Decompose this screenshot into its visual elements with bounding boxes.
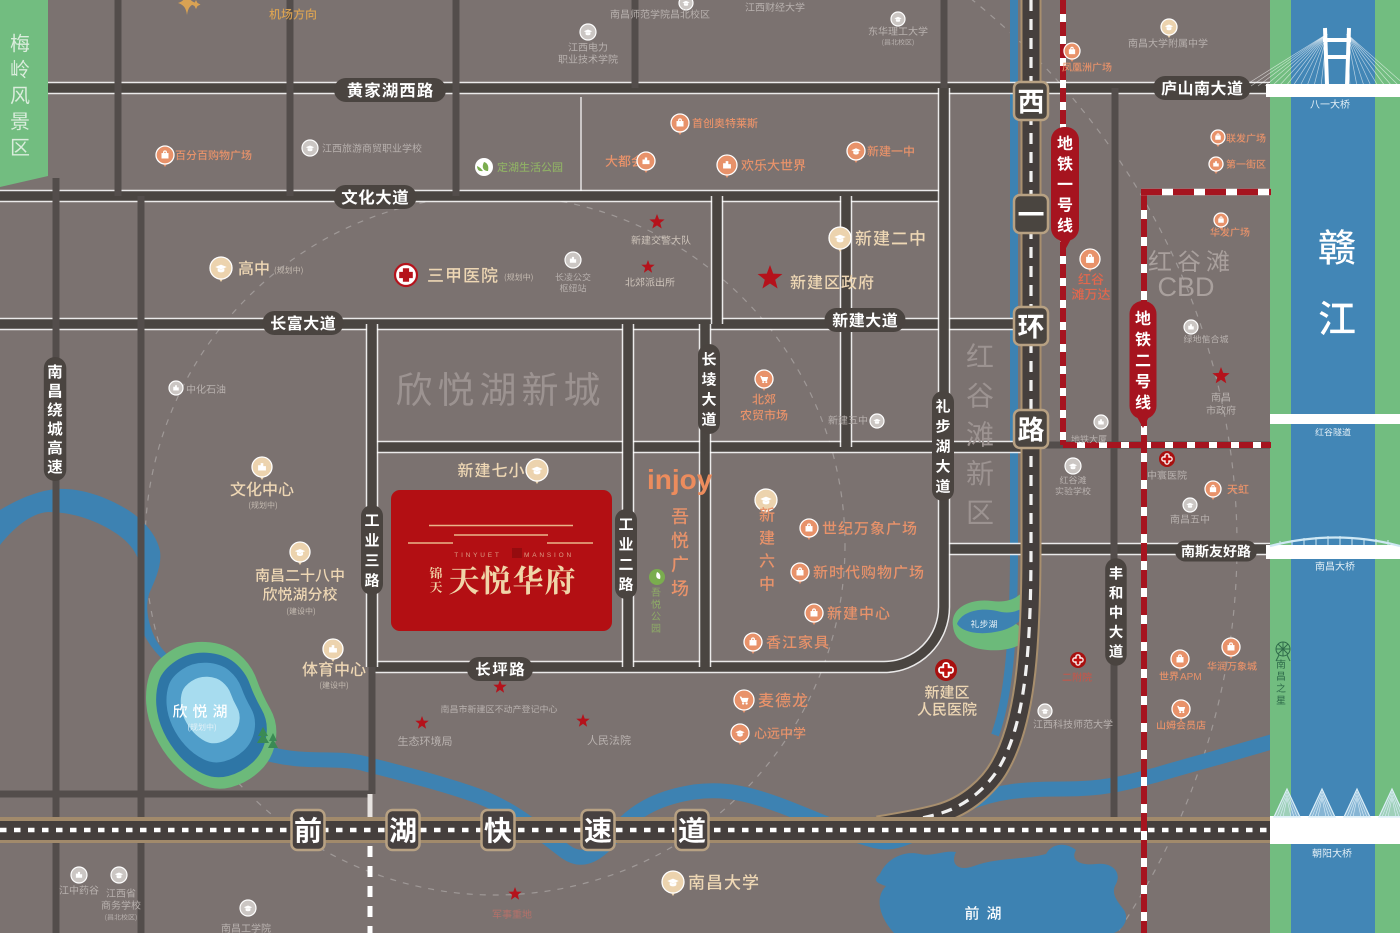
svg-text:TINYUET: TINYUET	[454, 552, 501, 559]
svg-text:CBD: CBD	[1157, 272, 1214, 302]
svg-text:MANSION: MANSION	[524, 552, 574, 559]
svg-text:injoy: injoy	[647, 464, 713, 495]
svg-text:APM: APM	[1180, 672, 1202, 683]
